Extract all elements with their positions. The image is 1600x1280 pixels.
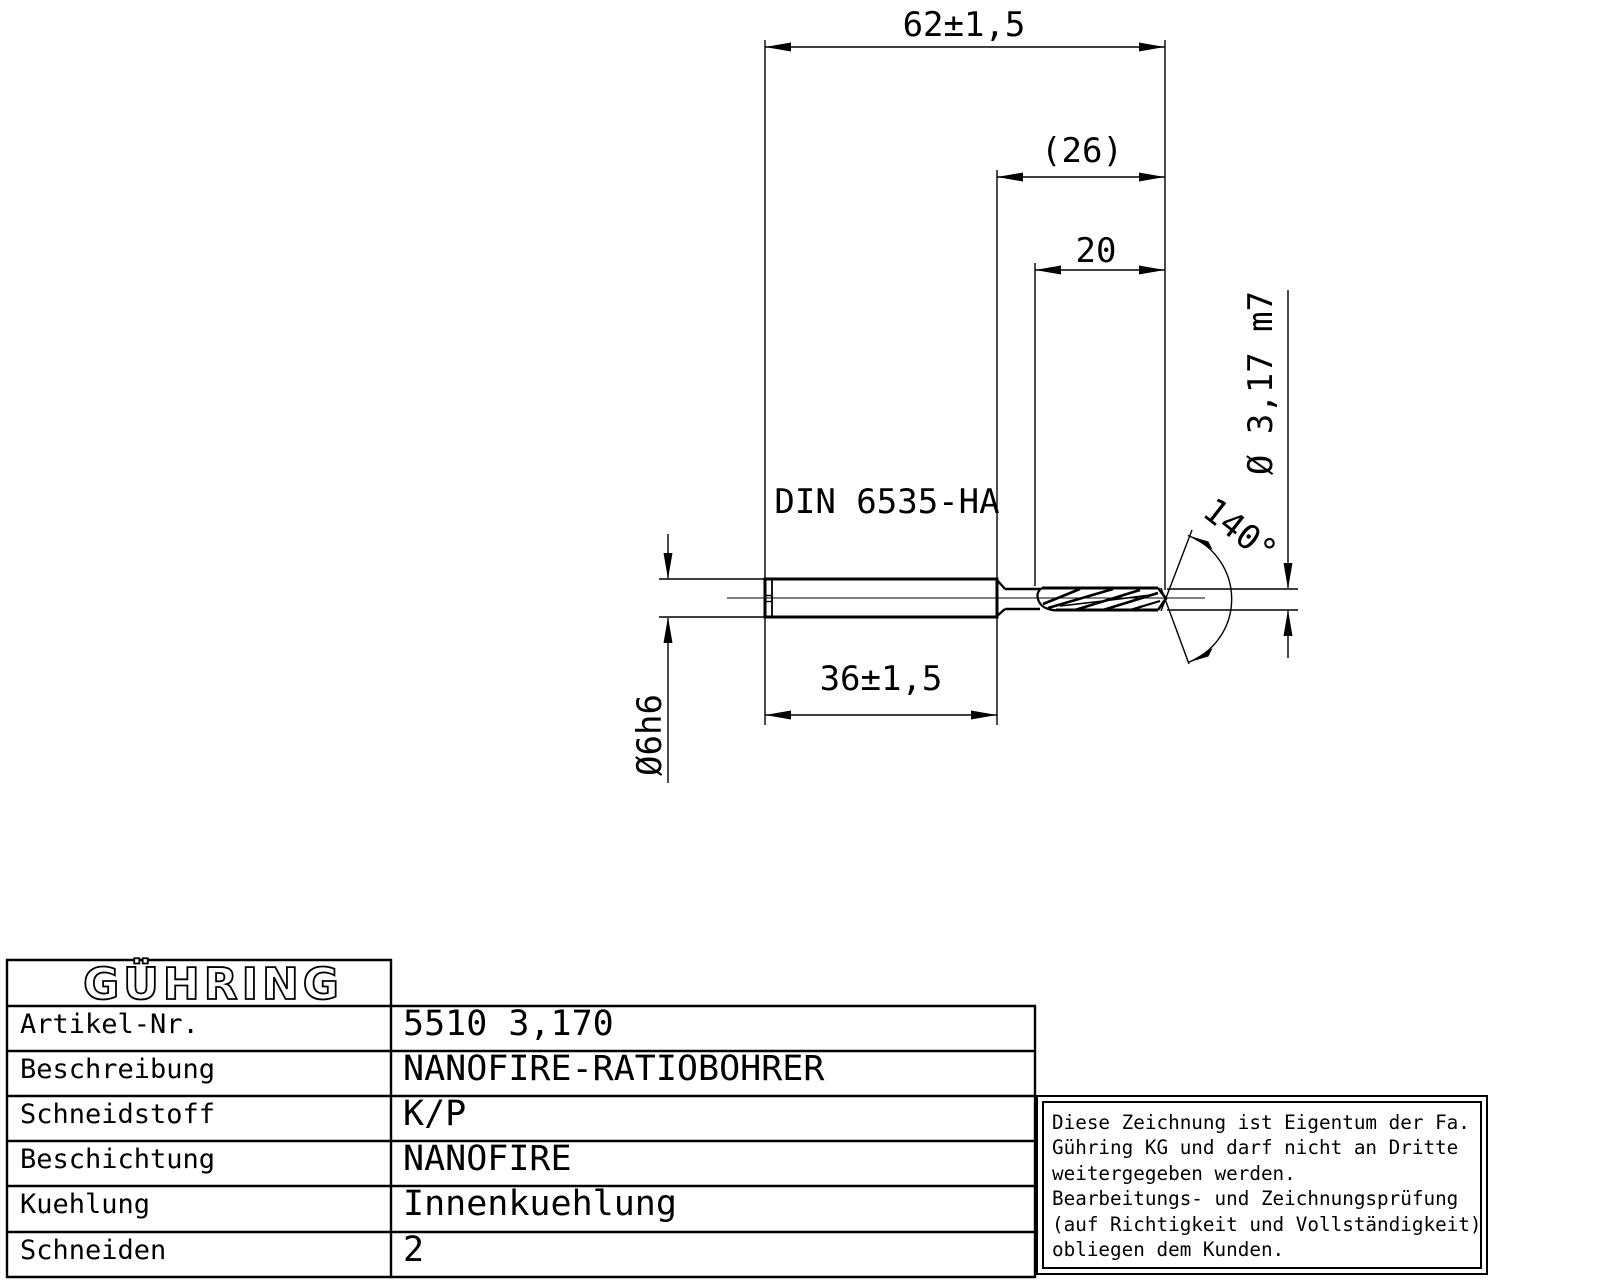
table-row: Schneiden 2 [7,1232,1035,1277]
row-value: 5510 3,170 [403,1007,614,1042]
row-label: Schneidstoff [20,1101,215,1128]
dim-point-angle-label: 140° [1195,490,1284,572]
table-row: Schneidstoff K/P [7,1096,1035,1141]
row-value: Innenkuehlung [403,1187,677,1222]
dim-flute-length-label: 20 [1076,231,1117,271]
dim-shank-diameter-label: Ø6h6 [630,694,670,776]
notice-line: Bearbeitungs- und Zeichnungsprüfung [1052,1186,1488,1211]
row-label: Kuehlung [20,1191,150,1218]
notice-line: weitergegeben werden. [1052,1161,1488,1186]
row-label: Beschichtung [20,1146,215,1173]
row-value: NANOFIRE [403,1142,572,1177]
notice-line: (auf Richtigkeit und Vollständigkeit) [1052,1212,1488,1237]
notice-line: Gühring KG und darf nicht an Dritte [1052,1135,1488,1160]
dim-shank-length-label: 36±1,5 [820,659,943,699]
guehring-logo: GÜHRING [83,957,343,1010]
row-value: 2 [403,1233,424,1268]
table-row: Beschichtung NANOFIRE [7,1141,1035,1186]
dim-overall-length-label: 62±1,5 [903,5,1026,45]
notice-line: obliegen dem Kunden. [1052,1237,1488,1262]
drawing-sheet: 62±1,5 (26) 20 DIN 6535-HA 36±1,5 Ø6h6 Ø… [0,0,1600,1280]
flute-section [1038,588,1167,610]
row-label: Schneiden [20,1237,166,1264]
shank-standard-label: DIN 6535-HA [774,482,999,522]
dim-cut-diameter-label: Ø 3,17 m7 [1241,291,1281,475]
row-label: Beschreibung [20,1056,215,1083]
table-row: Beschreibung NANOFIRE-RATIOBOHRER [7,1051,1035,1096]
ownership-notice: Diese Zeichnung ist Eigentum der Fa. Güh… [1052,1110,1488,1262]
table-row: Artikel-Nr. 5510 3,170 [7,1006,1035,1051]
row-value: NANOFIRE-RATIOBOHRER [403,1052,824,1087]
row-value: K/P [403,1097,466,1132]
notice-line: Diese Zeichnung ist Eigentum der Fa. [1052,1110,1488,1135]
row-label: Artikel-Nr. [20,1011,199,1038]
dim-ref-length-label: (26) [1041,131,1123,171]
dimension-lines [659,40,1298,783]
table-row: Kuehlung Innenkuehlung [7,1186,1035,1231]
drawing-annotations: 62±1,5 (26) 20 DIN 6535-HA 36±1,5 Ø6h6 Ø… [630,5,1284,776]
